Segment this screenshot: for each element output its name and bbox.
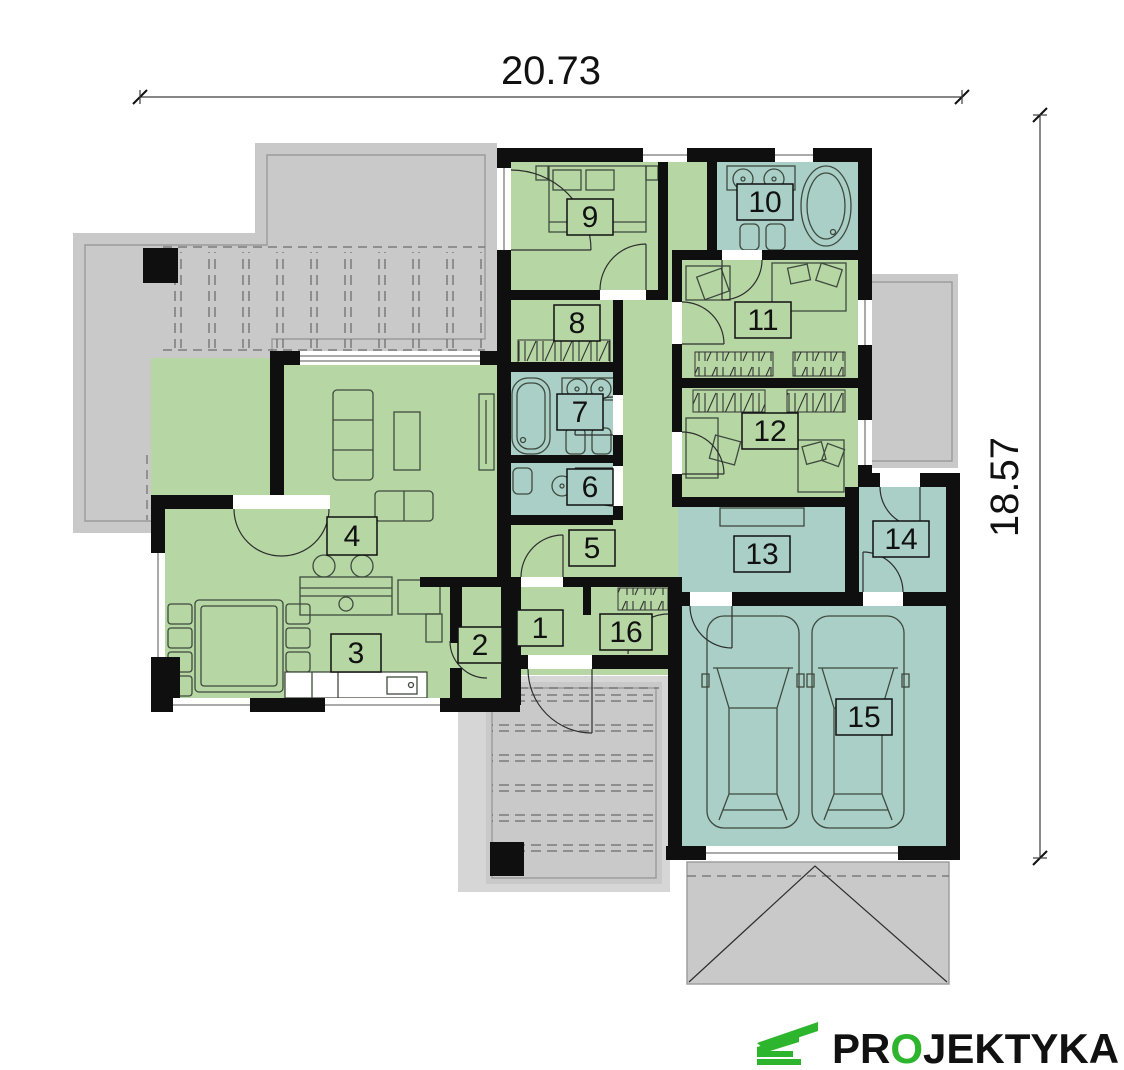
terrace-right — [864, 274, 958, 468]
floor-plan-drawing: 1 2 3 4 5 8 9 11 12 16 6 7 10 13 14 15 2… — [0, 0, 1124, 1070]
room-label-1: 1 — [517, 610, 563, 646]
logo: PROJEKTYKA — [757, 1022, 1119, 1070]
room-label-7: 7 — [557, 394, 603, 430]
room-label-12: 12 — [742, 413, 798, 449]
room-label-14: 14 — [873, 521, 929, 557]
room-label-15: 15 — [836, 699, 892, 735]
logo-building-icon — [757, 1022, 818, 1065]
room-15-number: 15 — [847, 701, 880, 734]
room-11-number: 11 — [747, 304, 778, 337]
room-label-10: 10 — [737, 184, 793, 220]
room-14-number: 14 — [884, 523, 917, 556]
logo-text-post: JEKTYKA — [923, 1025, 1119, 1070]
garage-canopy — [687, 862, 949, 984]
dimension-right: 18.57 — [983, 108, 1047, 865]
dimension-height-label: 18.57 — [983, 437, 1027, 537]
room-13-number: 13 — [745, 538, 778, 571]
room-2-number: 2 — [472, 629, 489, 662]
room-16-number: 16 — [609, 616, 642, 649]
floor-plan-page: 1 2 3 4 5 8 9 11 12 16 6 7 10 13 14 15 2… — [0, 0, 1124, 1070]
room-label-8: 8 — [554, 305, 600, 341]
room-3-number: 3 — [348, 637, 365, 670]
room-label-5: 5 — [569, 530, 615, 566]
room-label-6: 6 — [567, 469, 613, 505]
room-10-number: 10 — [748, 186, 781, 219]
logo-wordmark: PROJEKTYKA — [832, 1025, 1119, 1070]
room-label-2: 2 — [458, 627, 502, 663]
room-12-number: 12 — [753, 415, 786, 448]
room-label-3: 3 — [331, 634, 381, 672]
room-7-number: 7 — [572, 396, 589, 429]
logo-text-o: O — [890, 1025, 923, 1070]
room-5-number: 5 — [584, 532, 601, 565]
logo-text-pre: PR — [832, 1025, 890, 1070]
room-label-4: 4 — [327, 517, 377, 555]
room-label-16: 16 — [600, 614, 652, 650]
room-8-number: 8 — [569, 307, 586, 340]
room-4-number: 4 — [344, 520, 361, 553]
dimension-width-label: 20.73 — [501, 49, 601, 93]
room-9-number: 9 — [582, 201, 599, 234]
room-label-13: 13 — [734, 536, 790, 572]
room-1-number: 1 — [532, 612, 549, 645]
room-label-11: 11 — [735, 302, 791, 338]
room-6-number: 6 — [582, 471, 599, 504]
terrace-deck-pattern — [163, 252, 485, 348]
dimension-top: 20.73 — [133, 49, 969, 104]
room-label-9: 9 — [567, 199, 613, 235]
